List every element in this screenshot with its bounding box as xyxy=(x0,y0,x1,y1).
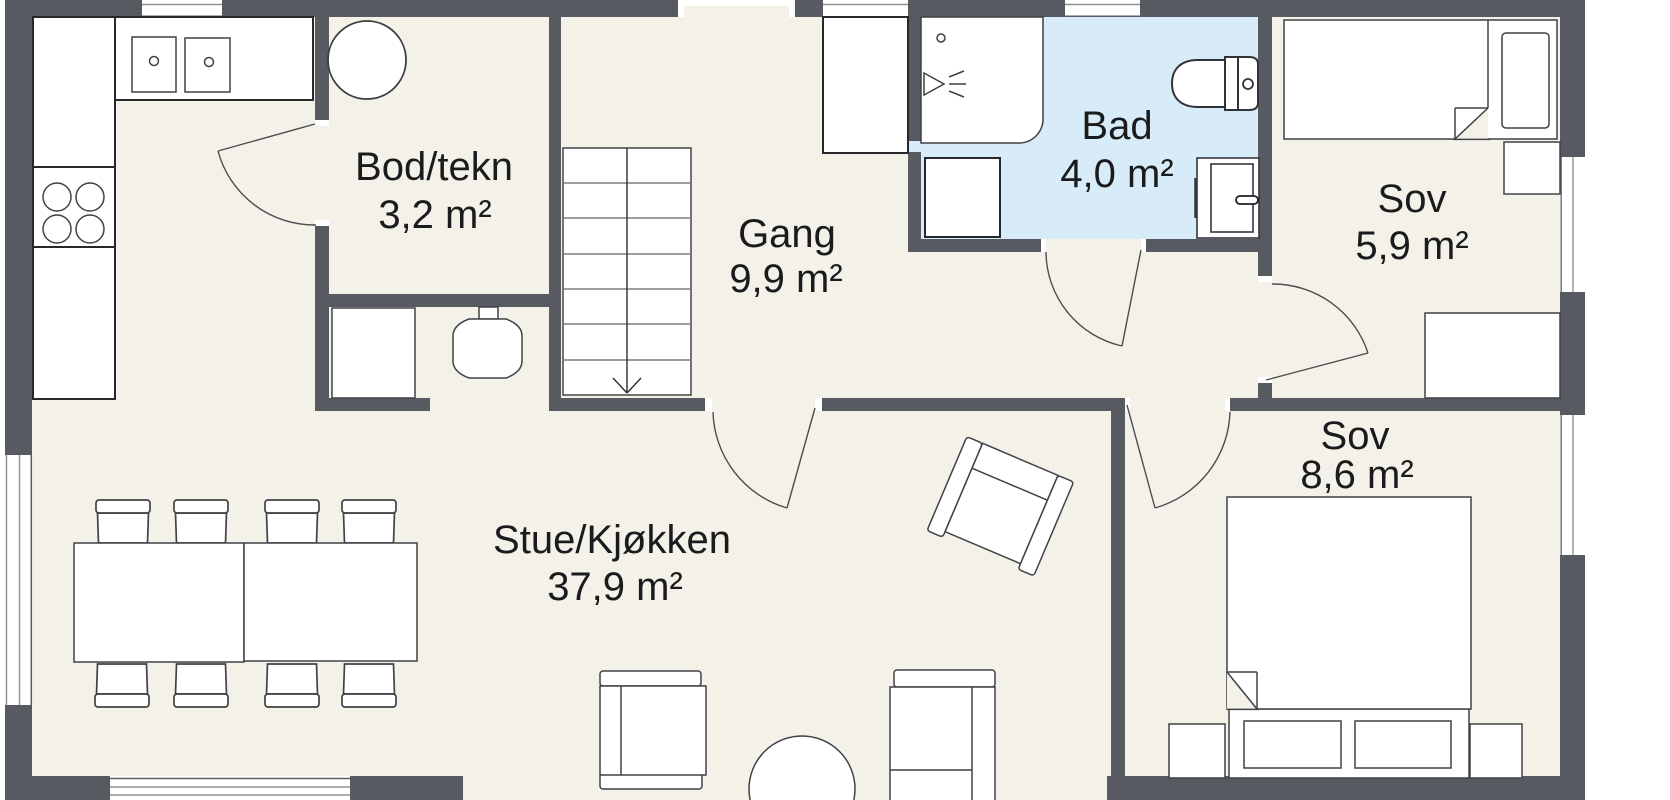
svg-text:3,2 m²: 3,2 m² xyxy=(378,193,491,237)
svg-text:Sov: Sov xyxy=(1378,177,1447,221)
svg-text:Gang: Gang xyxy=(738,212,836,256)
svg-text:5,9 m²: 5,9 m² xyxy=(1355,224,1468,268)
svg-text:9,9 m²: 9,9 m² xyxy=(729,257,842,301)
svg-text:Bod/tekn: Bod/tekn xyxy=(355,145,513,189)
svg-text:Bad: Bad xyxy=(1081,104,1152,148)
svg-text:Stue/Kjøkken: Stue/Kjøkken xyxy=(493,518,731,562)
svg-text:8,6 m²: 8,6 m² xyxy=(1300,453,1413,497)
svg-text:4,0 m²: 4,0 m² xyxy=(1060,152,1173,196)
svg-text:37,9 m²: 37,9 m² xyxy=(547,565,683,609)
svg-text:Sov: Sov xyxy=(1321,414,1390,458)
